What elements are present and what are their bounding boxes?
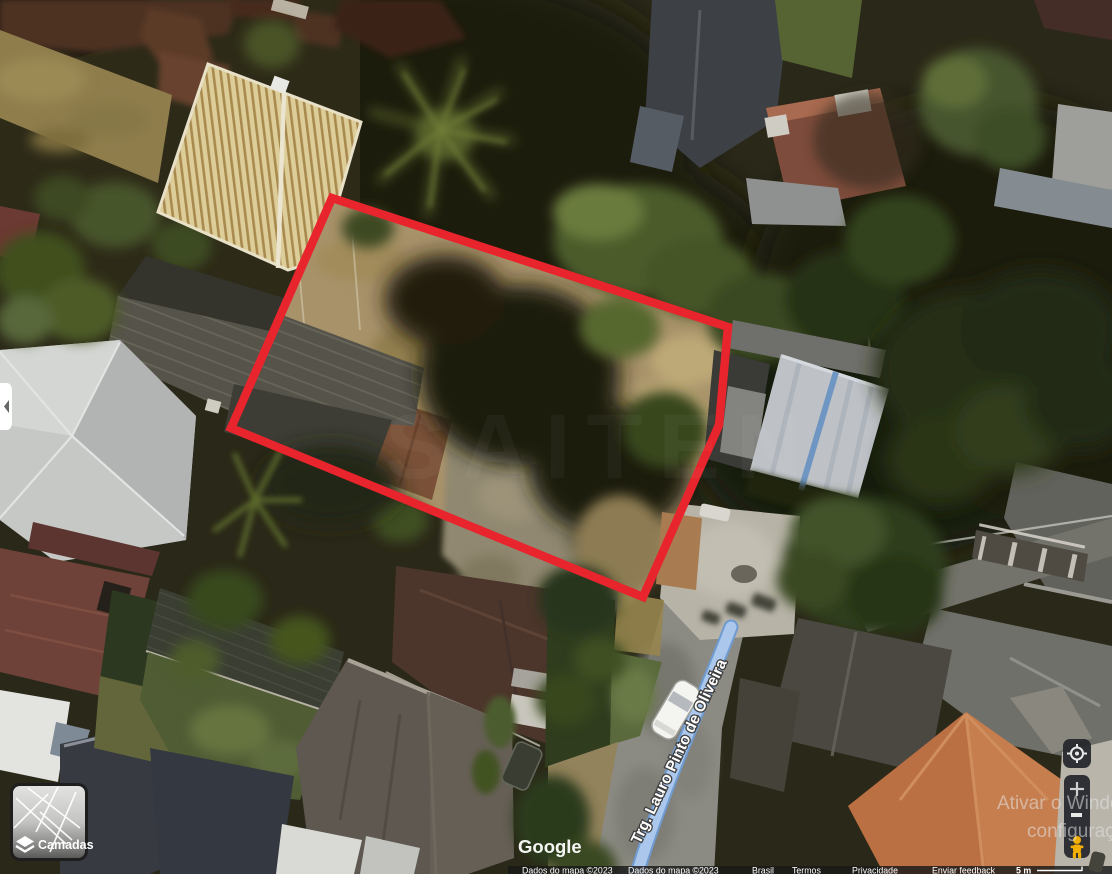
svg-text:Enviar feedback: Enviar feedback: [932, 866, 996, 874]
svg-text:Dados do mapa ©2023: Dados do mapa ©2023: [522, 866, 613, 874]
svg-text:Camadas: Camadas: [38, 838, 94, 852]
svg-text:5 m: 5 m: [1016, 866, 1031, 874]
svg-text:Termos: Termos: [792, 866, 821, 874]
svg-text:Brasil: Brasil: [752, 866, 774, 874]
svg-text:Google: Google: [518, 836, 582, 857]
svg-text:Ativar o Windo: Ativar o Windo: [997, 793, 1112, 814]
svg-text:Privacidade: Privacidade: [852, 866, 898, 874]
svg-text:configuraçõe: configuraçõe: [1027, 821, 1112, 842]
svg-text:SAITEN: SAITEN: [385, 396, 818, 498]
svg-text:Dados do mapa ©2023: Dados do mapa ©2023: [628, 866, 719, 874]
